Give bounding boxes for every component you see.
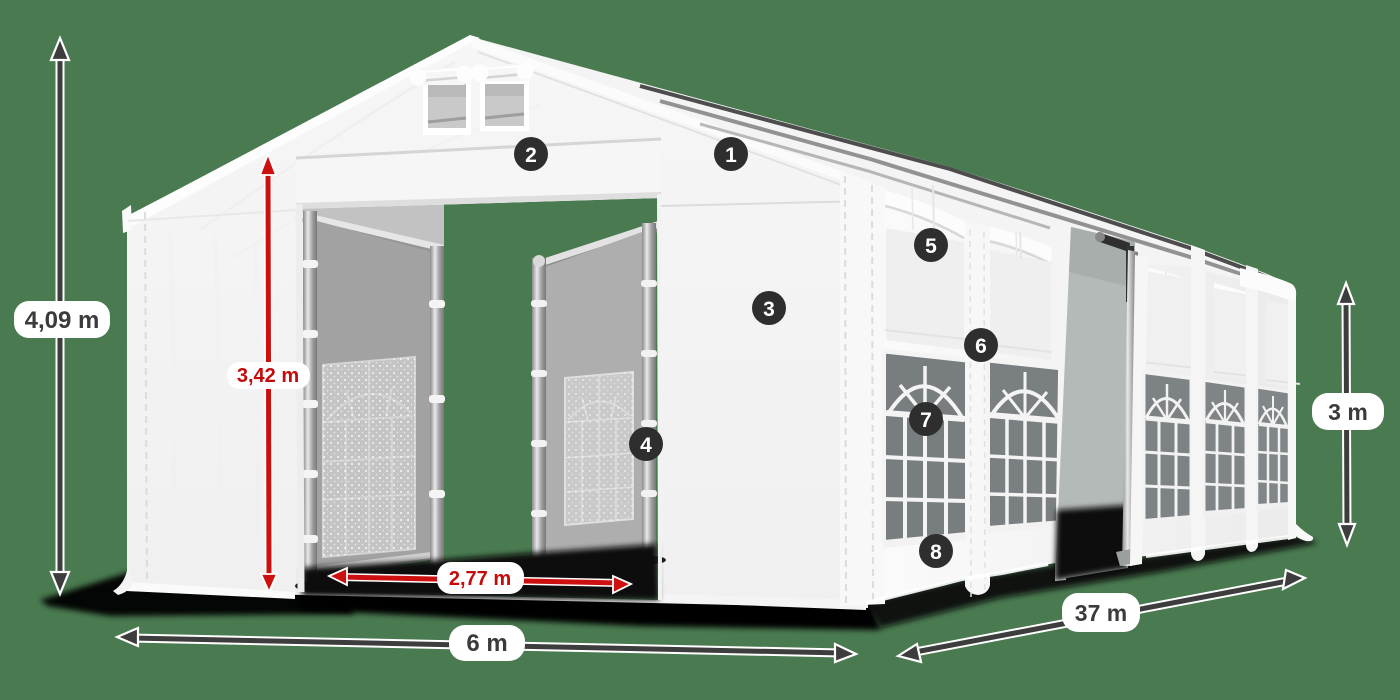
svg-text:2,77 m: 2,77 m (449, 568, 511, 590)
svg-text:7: 7 (920, 409, 932, 432)
svg-text:37 m: 37 m (1075, 600, 1127, 626)
svg-text:3: 3 (763, 298, 775, 321)
svg-text:4,09 m: 4,09 m (25, 307, 100, 334)
svg-text:6: 6 (975, 335, 987, 358)
svg-text:3 m: 3 m (1328, 399, 1368, 425)
svg-text:5: 5 (925, 235, 937, 258)
svg-text:3,42 m: 3,42 m (237, 365, 299, 387)
svg-text:4: 4 (640, 434, 652, 457)
svg-text:1: 1 (725, 144, 737, 167)
svg-text:6 m: 6 m (466, 630, 507, 657)
svg-text:2: 2 (525, 144, 537, 167)
svg-text:8: 8 (930, 541, 942, 564)
